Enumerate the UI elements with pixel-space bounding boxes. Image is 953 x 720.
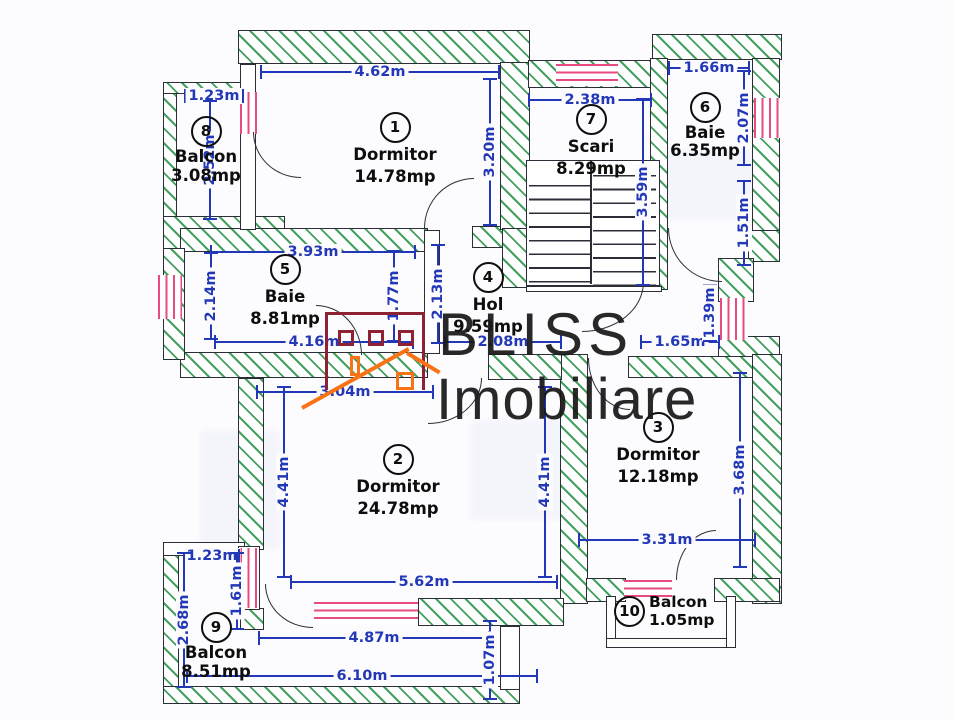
room-name: Dormitor [335, 144, 455, 166]
room-label-balcon-8: 8 Balcon 3.08mp [158, 116, 254, 186]
room-name: Baie [233, 286, 337, 308]
room-number: 8 [191, 116, 222, 147]
room-name: Dormitor [598, 444, 718, 466]
dim-label: 1.07m [482, 632, 498, 689]
room-number: 2 [383, 444, 414, 475]
window [158, 275, 182, 319]
wall-segment [606, 638, 736, 648]
door-arc [265, 584, 313, 628]
dim-label: 4.62m [352, 64, 409, 80]
wall-segment [238, 378, 264, 550]
room-area: 14.78mp [335, 166, 455, 188]
dim-label: 4.41m [276, 454, 292, 511]
wall-segment [652, 34, 782, 60]
room-number: 7 [576, 104, 607, 135]
dim-label: 3.20m [482, 124, 498, 181]
floor-plan: 4.62m 1.23m 2.38m 1.66m 3.93m 4.16m 2.08… [0, 0, 953, 720]
room-area: 12.18mp [598, 466, 718, 488]
watermark-brand-line2: Imobiliare [436, 366, 697, 433]
dim-balcon9-height-right: 1.07m [482, 620, 498, 700]
room-name: Scari [535, 136, 647, 158]
room-name: Balcon [158, 148, 254, 167]
room-number: 4 [473, 262, 504, 293]
watermark-chimney [350, 356, 360, 376]
room-label-baie-5: 5 Baie 8.81mp [233, 254, 337, 330]
dim-room1-height: 3.20m [482, 78, 498, 226]
room-number: 1 [380, 112, 411, 143]
room-area: 8.51mp [162, 663, 270, 682]
dim-room2-height-left: 4.41m [276, 386, 292, 578]
wall-segment [714, 578, 780, 602]
room-area: 8.81mp [233, 308, 337, 330]
watermark-house-window [338, 330, 354, 346]
wall-segment [726, 596, 736, 648]
door-arc [668, 228, 722, 282]
room-number: 9 [201, 612, 232, 643]
dim-label: 3.68m [732, 442, 748, 499]
wall-segment [238, 30, 530, 64]
dim-label: 1.51m [736, 195, 752, 252]
dim-window-right-height: 1.39m [702, 284, 718, 342]
stair-flight [529, 173, 590, 285]
watermark-brand-line1: BLISS [438, 300, 633, 369]
dim-label: 4.41m [537, 454, 553, 511]
dim-balcon9-width-mid: 4.87m [258, 630, 490, 646]
dim-baie5-height-left: 2.14m [203, 252, 219, 340]
dim-label: 5.62m [396, 574, 453, 590]
room-number: 10 [614, 596, 645, 627]
dim-label: 6.10m [334, 668, 391, 684]
dim-room3-width: 3.31m [578, 532, 756, 548]
room-label-baie-6: 6 Baie 6.35mp [652, 92, 758, 161]
dim-label: 3.31m [639, 532, 696, 548]
room-area: 1.05mp [649, 612, 715, 630]
door-arc [253, 132, 301, 178]
room-area: 6.35mp [652, 142, 758, 160]
room-label-dormitor-1: 1 Dormitor 14.78mp [335, 112, 455, 188]
dim-room2-width-bottom: 5.62m [290, 574, 558, 590]
room-label-balcon-9: 9 Balcon 8.51mp [162, 612, 270, 682]
dim-label: 1.39m [702, 285, 718, 342]
room-name: Balcon [162, 644, 270, 663]
room-number: 5 [270, 254, 301, 285]
dim-baie6-height-lower: 1.51m [736, 180, 752, 266]
room-name: Dormitor [338, 476, 458, 498]
room-label-dormitor-2: 2 Dormitor 24.78mp [338, 444, 458, 520]
dim-label: 1.66m [681, 60, 738, 76]
room-name: Balcon [649, 594, 715, 612]
dim-label: 4.87m [346, 630, 403, 646]
room-area: 8.29mp [535, 158, 647, 180]
dim-label: 1.61m [229, 563, 245, 620]
watermark-house-window [398, 330, 414, 346]
window [556, 64, 618, 86]
room-area: 3.08mp [158, 167, 254, 186]
room-label-balcon-10: 10 Balcon 1.05mp [614, 594, 715, 630]
dim-label: 1.65m [652, 334, 709, 350]
window [720, 298, 748, 340]
window [314, 602, 418, 624]
room-number: 6 [690, 92, 721, 123]
wall-segment [163, 686, 520, 704]
watermark-orange-window [396, 372, 414, 390]
room-label-scari: 7 Scari 8.29mp [535, 104, 647, 180]
wall-segment [752, 354, 782, 604]
dim-room3-height: 3.68m [732, 372, 748, 568]
room-name: Baie [652, 124, 758, 142]
room-area: 24.78mp [338, 498, 458, 520]
dim-label: 2.14m [203, 268, 219, 325]
dim-room1-width: 4.62m [260, 64, 500, 80]
watermark-house-window [368, 330, 384, 346]
